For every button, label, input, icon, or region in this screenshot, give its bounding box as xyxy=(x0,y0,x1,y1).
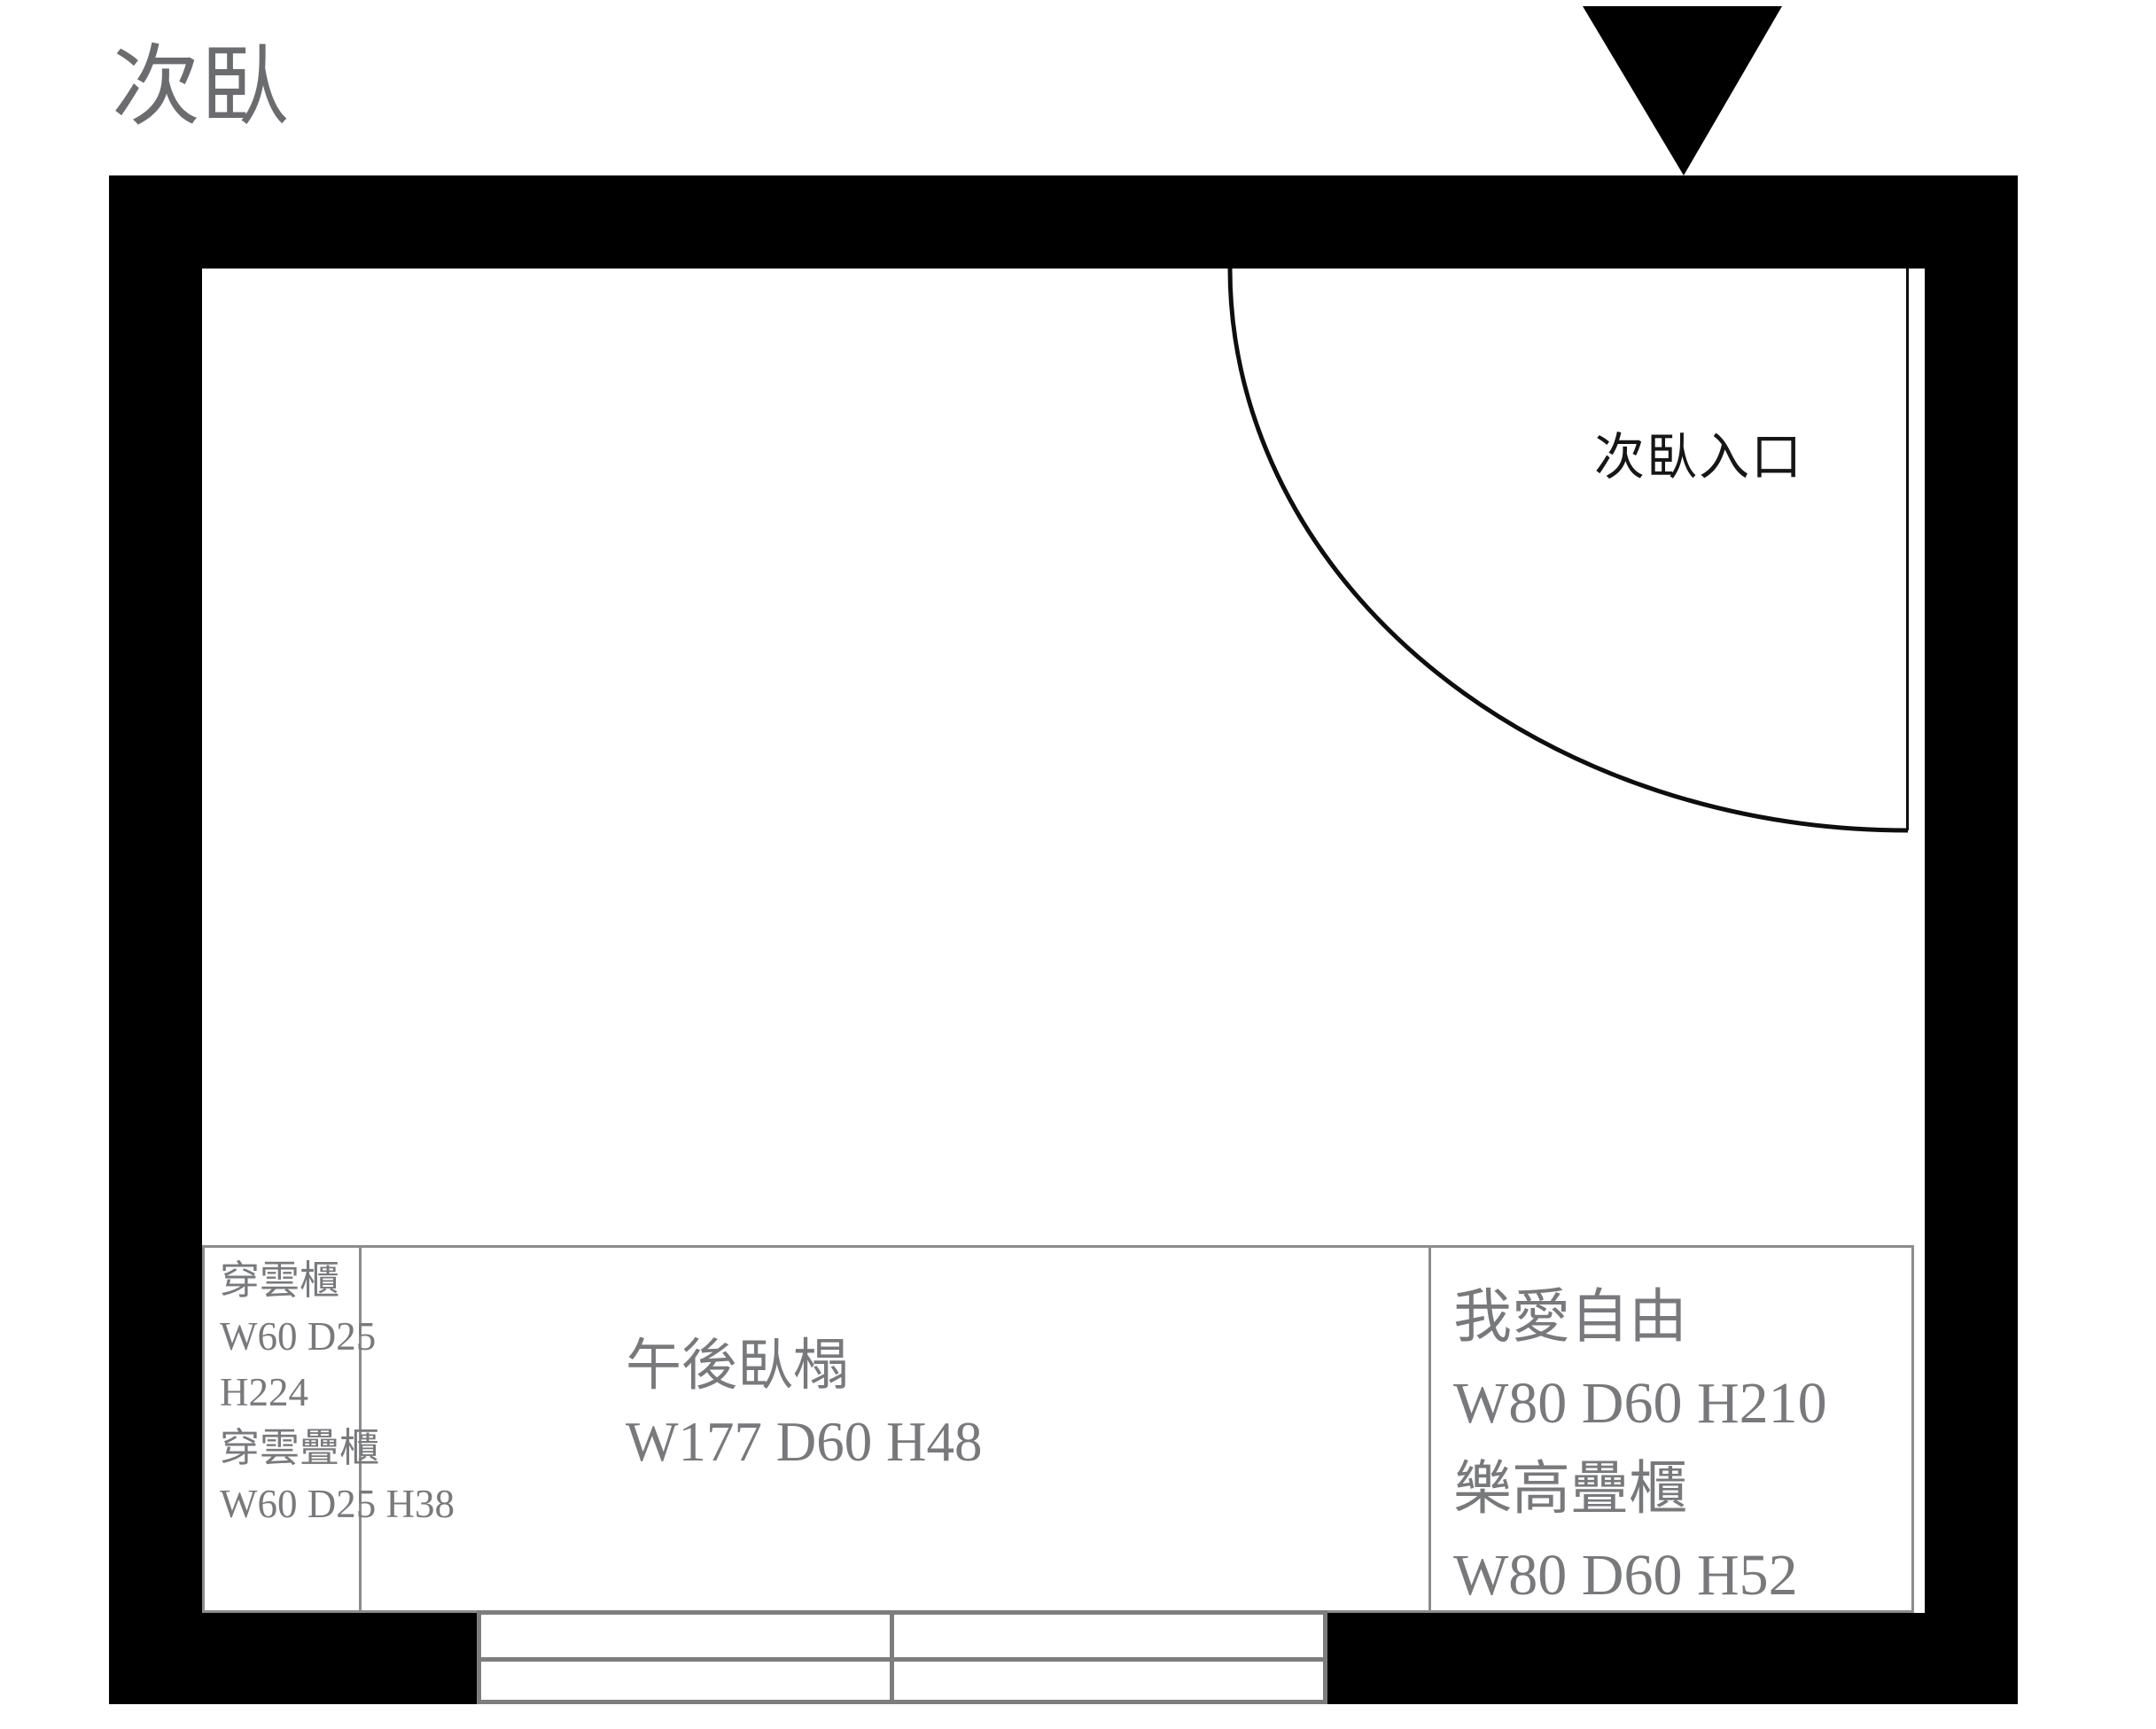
door-leaf-line xyxy=(1906,269,1909,830)
right-cabinet-label: 我愛自由 W80 D60 H210 樂高疊櫃 W80 D60 H52 xyxy=(1453,1274,2074,1618)
page-title: 次臥 xyxy=(112,39,289,136)
daybed-label: 午後臥榻 W177 D60 H48 xyxy=(626,1328,1423,1480)
window-horizontal-divider xyxy=(481,1657,1323,1662)
wall-bottom-left-segment xyxy=(109,1613,477,1704)
wall-bottom-right-segment xyxy=(1327,1613,2018,1704)
door-swing-arc xyxy=(1230,269,1908,830)
furniture-divider-right xyxy=(1428,1245,1431,1613)
floor-plan: 次臥 次臥入口 穿雲櫃 W60 D25 H224 穿雲疊櫃 W60 D25 H3… xyxy=(0,0,2156,1729)
entrance-label: 次臥入口 xyxy=(1594,431,1803,487)
wall-top xyxy=(109,175,2018,269)
entrance-marker-triangle xyxy=(1583,6,1782,175)
window-vertical-divider xyxy=(890,1615,894,1700)
window xyxy=(477,1610,1327,1704)
wall-left xyxy=(109,175,202,1704)
